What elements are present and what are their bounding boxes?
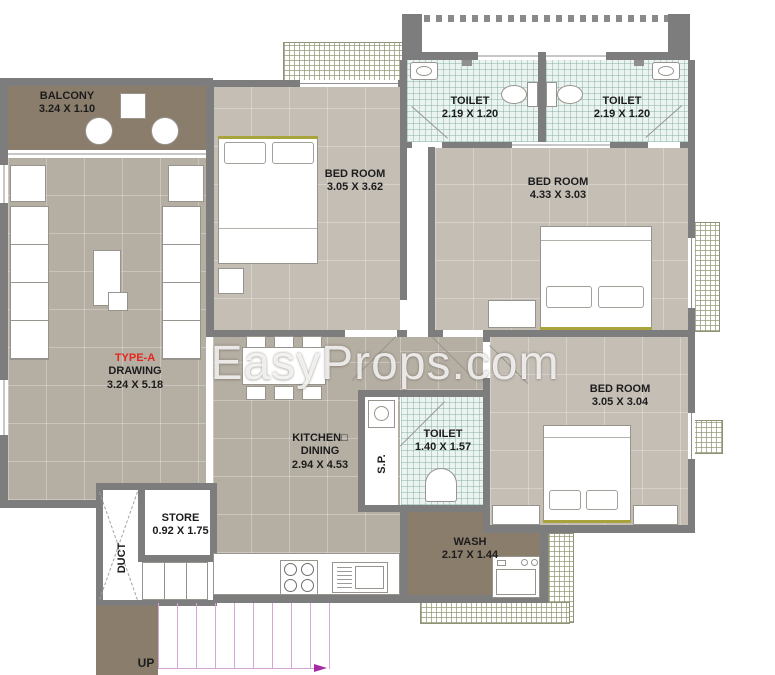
- stair-tread: [310, 603, 311, 669]
- room-name: TOILET: [398, 428, 488, 441]
- wall: [96, 483, 217, 490]
- room-label-toilet2: TOILET 2.19 X 1.20: [567, 95, 677, 122]
- window: [546, 52, 606, 60]
- pillow: [272, 142, 314, 164]
- sofa-seat: [168, 165, 204, 202]
- room-label-bedroom1: BED ROOM 3.05 X 3.62: [300, 168, 410, 195]
- stove-burner: [301, 563, 314, 576]
- wall: [483, 525, 695, 533]
- wall: [400, 60, 407, 337]
- wall: [358, 390, 490, 397]
- stove-burner: [301, 579, 314, 592]
- terrace-parapet: [424, 15, 668, 22]
- wall: [402, 14, 422, 56]
- door-opening: [648, 142, 680, 148]
- room-name: TOILET: [415, 95, 525, 108]
- room-dims: 2.19 X 1.20: [567, 108, 677, 121]
- chajja-hatch-bottom: [420, 602, 570, 624]
- sink-drainboard: [337, 567, 352, 588]
- wall: [428, 147, 435, 337]
- room-label-sp-shaft: S.P.: [376, 434, 388, 494]
- balcony-sliding-window: [8, 150, 206, 158]
- room-name: STORE: [133, 512, 228, 525]
- stair-tread: [177, 603, 178, 669]
- washer-drum: [496, 569, 536, 595]
- wall: [0, 500, 100, 508]
- room-label-duct: DUCT: [116, 528, 128, 588]
- room-name: TOILET: [567, 95, 677, 108]
- basin-bowl: [416, 66, 432, 76]
- room-label-kitchen: KITCHEN□ DINING 2.94 X 4.53: [265, 432, 375, 472]
- window: [688, 413, 695, 459]
- wc-tank: [546, 82, 557, 107]
- shower-icon: [462, 60, 472, 66]
- stair-tread: [291, 603, 292, 669]
- wall: [538, 60, 546, 142]
- sink-basin: [355, 566, 384, 589]
- shower-icon: [634, 60, 644, 66]
- stair-direction-line: [158, 668, 314, 669]
- room-label-wash: WASH 2.17 X 1.44: [415, 536, 525, 563]
- room-dims: 0.92 X 1.75: [133, 525, 228, 538]
- stair-tread: [234, 603, 235, 669]
- room-label-balcony: BALCONY 3.24 X 1.10: [12, 90, 122, 117]
- stair-tread: [196, 603, 197, 669]
- window: [512, 142, 610, 148]
- room-dims: 2.94 X 4.53: [265, 459, 375, 472]
- stair-tread: [253, 603, 254, 669]
- blanket-line: [544, 437, 630, 438]
- door-opening: [412, 142, 442, 148]
- bed-headboard: [540, 327, 652, 330]
- room-name: WASH: [415, 536, 525, 549]
- room-dims: 2.17 X 1.44: [415, 549, 525, 562]
- store-window: [142, 562, 208, 600]
- basin-bowl: [658, 66, 674, 76]
- room-label-store: STORE 0.92 X 1.75: [133, 512, 228, 539]
- wardrobe: [633, 505, 678, 525]
- room-label-toilet1: TOILET 2.19 X 1.20: [415, 95, 525, 122]
- geyser-dial: [374, 406, 389, 421]
- stove-burner: [284, 563, 297, 576]
- pillow: [598, 286, 644, 308]
- wall: [206, 80, 214, 337]
- room-label-bedroom2: BED ROOM 4.33 X 3.03: [503, 176, 613, 203]
- wall: [213, 595, 403, 603]
- bedside-table: [218, 268, 244, 294]
- side-table: [108, 292, 128, 311]
- chajja-hatch-top: [283, 42, 405, 82]
- window: [0, 165, 8, 203]
- washer-knob: [531, 559, 538, 566]
- window: [478, 52, 538, 60]
- room-dims: 3.24 X 1.10: [12, 103, 122, 116]
- bed: [540, 226, 652, 330]
- room-label-drawing: TYPE-A DRAWING 3.24 X 5.18: [80, 352, 190, 392]
- room-name-2: DINING: [265, 445, 375, 458]
- stove-burner: [284, 579, 297, 592]
- room-name: BED ROOM: [300, 168, 410, 181]
- unit-type-label: TYPE-A: [80, 352, 190, 365]
- balcony-square-table: [120, 93, 146, 119]
- wall: [400, 512, 408, 603]
- wc-tank: [527, 82, 538, 107]
- wc-bowl: [425, 468, 457, 502]
- room-dims: 2.19 X 1.20: [415, 108, 525, 121]
- room-dims: 3.05 X 3.04: [565, 396, 675, 409]
- watermark: EasyProps.com: [185, 336, 585, 391]
- sofa-left: [10, 206, 49, 360]
- wardrobe: [488, 300, 536, 328]
- stair-tread: [215, 603, 216, 669]
- window: [0, 380, 8, 435]
- sofa-seat: [10, 165, 46, 202]
- wall: [138, 555, 217, 562]
- window: [300, 80, 398, 87]
- stair-tread: [272, 603, 273, 669]
- wall: [0, 78, 8, 158]
- wall: [96, 600, 217, 606]
- pillow: [586, 490, 618, 510]
- pillow: [549, 490, 581, 510]
- room-label-toilet3: TOILET 1.40 X 1.57: [398, 428, 488, 455]
- wall: [358, 505, 490, 512]
- stairs-up-label: UP: [132, 656, 160, 671]
- pillow: [546, 286, 592, 308]
- balcony-round-table: [85, 117, 113, 145]
- wall: [0, 150, 8, 508]
- balcony-round-table: [151, 117, 179, 145]
- room-name: BALCONY: [12, 90, 122, 103]
- wall: [0, 78, 213, 86]
- room-dims: 3.05 X 3.62: [300, 181, 410, 194]
- window: [688, 238, 695, 308]
- room-dims: 3.24 X 5.18: [80, 379, 190, 392]
- room-name: DRAWING: [80, 365, 190, 378]
- blanket-line: [541, 240, 651, 241]
- wall: [540, 525, 548, 603]
- bed-headboard: [543, 520, 631, 523]
- bed-headboard: [218, 136, 318, 139]
- wall: [668, 14, 690, 56]
- stair-tread: [329, 603, 330, 669]
- room-dims: 1.40 X 1.57: [398, 441, 488, 454]
- wardrobe: [492, 505, 540, 525]
- room-name: BED ROOM: [503, 176, 613, 189]
- stair-direction-arrow: [314, 664, 327, 672]
- door-opening: [400, 300, 407, 330]
- blanket-line: [219, 228, 317, 229]
- room-dims: 4.33 X 3.03: [503, 189, 613, 202]
- room-name: KITCHEN□: [265, 432, 375, 445]
- chajja-hatch-right: [694, 222, 720, 332]
- pillow: [224, 142, 266, 164]
- floor-plan-canvas: BALCONY 3.24 X 1.10 BED ROOM 3.05 X 3.62…: [0, 0, 775, 675]
